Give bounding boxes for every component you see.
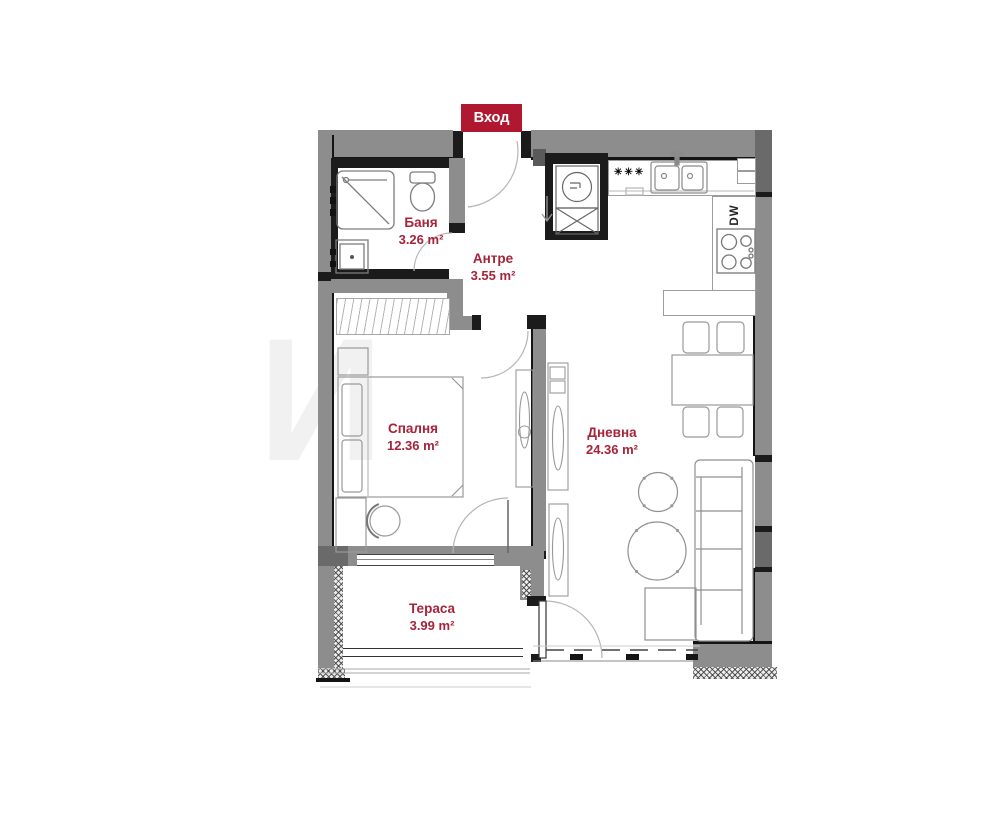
pillow [342, 384, 362, 436]
toilet-tank [410, 172, 435, 183]
entrance-badge: Вход [461, 104, 522, 132]
cabinet-shelf [550, 367, 565, 379]
toilet-bowl [411, 183, 435, 211]
dining-table [672, 355, 753, 405]
room-label-bathroom: Баня 3.26 m² [399, 214, 444, 248]
dresser-mirror [520, 392, 530, 448]
sofa-chaise [645, 588, 696, 640]
room-name: Дневна [586, 424, 638, 441]
dining-chair [717, 407, 743, 437]
bedroom-terrace-door-arc [453, 498, 508, 553]
burner [741, 258, 751, 268]
room-label-bedroom: Спалня 12.36 m² [387, 420, 439, 454]
room-label-hallway: Антре 3.55 m² [471, 250, 516, 284]
sink-drain [688, 174, 693, 179]
room-label-terrace: Тераса 3.99 m² [409, 600, 455, 634]
floor-plan: И [0, 0, 1000, 825]
knob [749, 254, 753, 258]
dishwasher-label: DW [722, 200, 748, 230]
sink-basin [655, 166, 679, 190]
chair-back [367, 504, 379, 538]
washing-machine-drum [563, 173, 592, 202]
wall-fittings [330, 186, 336, 267]
fridge-marker: ✳✳✳ [614, 167, 654, 178]
cabinet-decor [553, 406, 564, 470]
room-name: Тераса [409, 600, 455, 617]
room-area: 24.36 m² [586, 441, 638, 458]
nightstand [338, 348, 368, 375]
knob [749, 248, 753, 252]
entrance-door-arc [468, 141, 518, 207]
blanket-fold [452, 378, 463, 496]
dining-chair [683, 322, 709, 353]
room-area: 12.36 m² [387, 437, 439, 454]
laundry-closet [556, 166, 598, 234]
bedroom-dresser-tall [516, 370, 533, 487]
mullion [686, 654, 698, 660]
dining-chair [683, 407, 709, 437]
sink-basin [682, 166, 703, 190]
faucet [675, 156, 679, 165]
bedroom-dresser [336, 498, 366, 552]
room-name: Баня [399, 214, 444, 231]
room-label-living: Дневна 24.36 m² [586, 424, 638, 458]
pillow [342, 440, 362, 492]
room-area: 3.99 m² [409, 617, 455, 634]
dining-chair [717, 322, 744, 353]
cabinet-decor [553, 518, 564, 580]
sofa [695, 460, 753, 641]
bedroom-door-arc [481, 331, 528, 378]
bath-sink-drain [350, 255, 354, 259]
bottom-glazing [318, 646, 700, 687]
burner [741, 236, 751, 246]
fitting [330, 249, 336, 255]
washing-machine-icon [570, 183, 580, 188]
room-name: Антре [471, 250, 516, 267]
cabinet-shelf [550, 381, 565, 393]
sofa-group [628, 460, 753, 641]
mullion [570, 654, 583, 660]
burner [722, 255, 736, 269]
mullion [626, 654, 639, 660]
wall-cabinets [516, 363, 568, 596]
burner [722, 235, 737, 250]
dining-set [672, 322, 753, 437]
terrace-door-leaf [539, 601, 546, 658]
direction-arrow [542, 196, 552, 221]
room-area: 3.26 m² [399, 231, 444, 248]
chair [370, 506, 400, 536]
room-area: 3.55 m² [471, 267, 516, 284]
fitting [330, 209, 336, 216]
room-name: Спалня [387, 420, 439, 437]
fitting [330, 186, 336, 193]
fitting [330, 261, 336, 267]
sink-drain [662, 174, 667, 179]
table-dots [635, 477, 679, 574]
shower-diagonal [342, 177, 389, 224]
stove [717, 229, 755, 273]
fitting [330, 197, 336, 204]
